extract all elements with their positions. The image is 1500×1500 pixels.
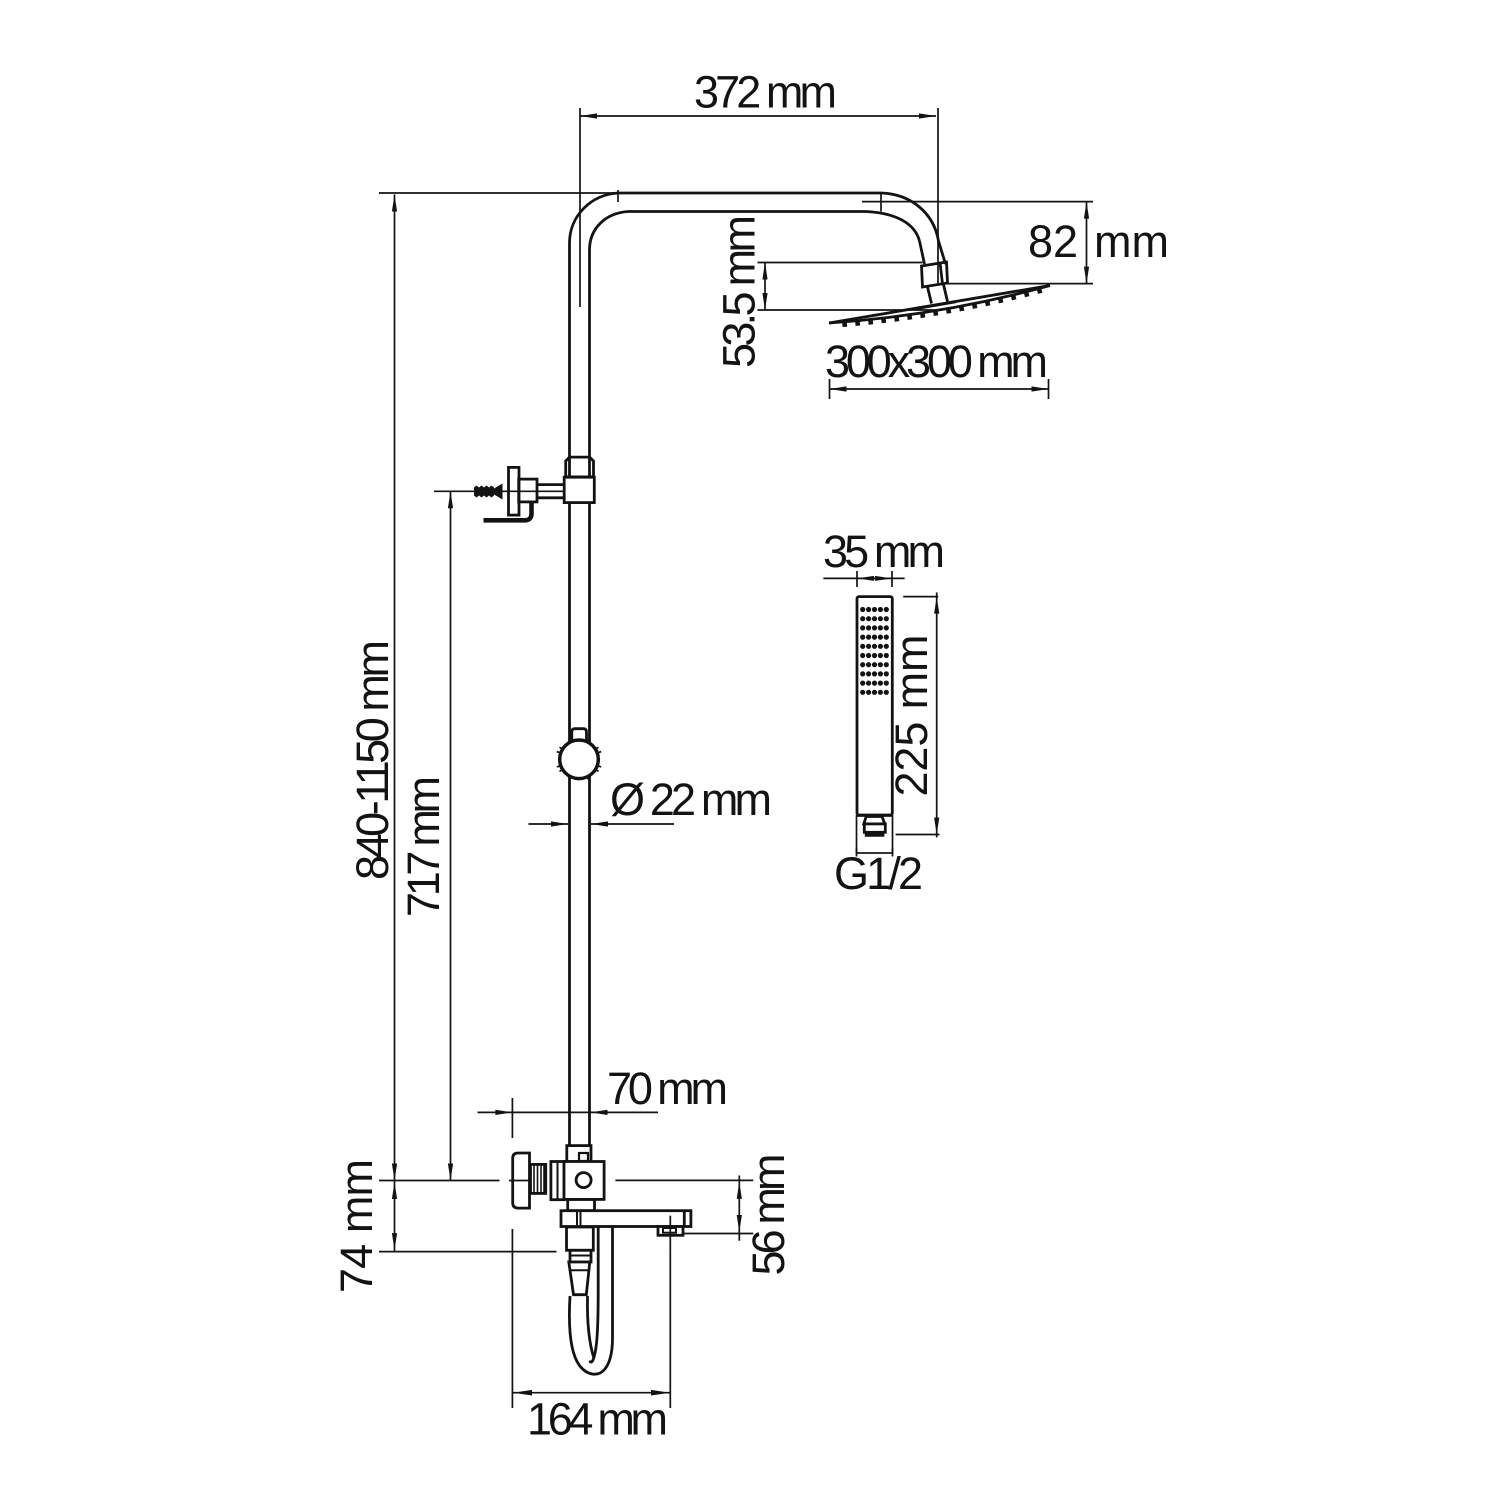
svg-text:G1/2: G1/2	[834, 848, 923, 899]
svg-text:840-1150 mm: 840-1150 mm	[347, 640, 398, 880]
svg-text:70 mm: 70 mm	[607, 1063, 728, 1114]
svg-text:82: 82	[1028, 216, 1078, 267]
svg-text:717 mm: 717 mm	[398, 776, 449, 917]
svg-text:74 mm: 74 mm	[331, 1159, 382, 1293]
svg-text:56 mm: 56 mm	[743, 1154, 794, 1276]
svg-text:164 mm: 164 mm	[527, 1394, 668, 1445]
svg-text:225 mm: 225 mm	[886, 635, 937, 797]
svg-text:53.5 mm: 53.5 mm	[714, 215, 765, 368]
svg-text:300x300 mm: 300x300 mm	[825, 336, 1048, 387]
svg-text:Ø 22 mm: Ø 22 mm	[610, 774, 772, 825]
svg-text:mm: mm	[1094, 216, 1169, 267]
svg-text:372 mm: 372 mm	[694, 67, 837, 118]
svg-text:35 mm: 35 mm	[823, 526, 945, 577]
